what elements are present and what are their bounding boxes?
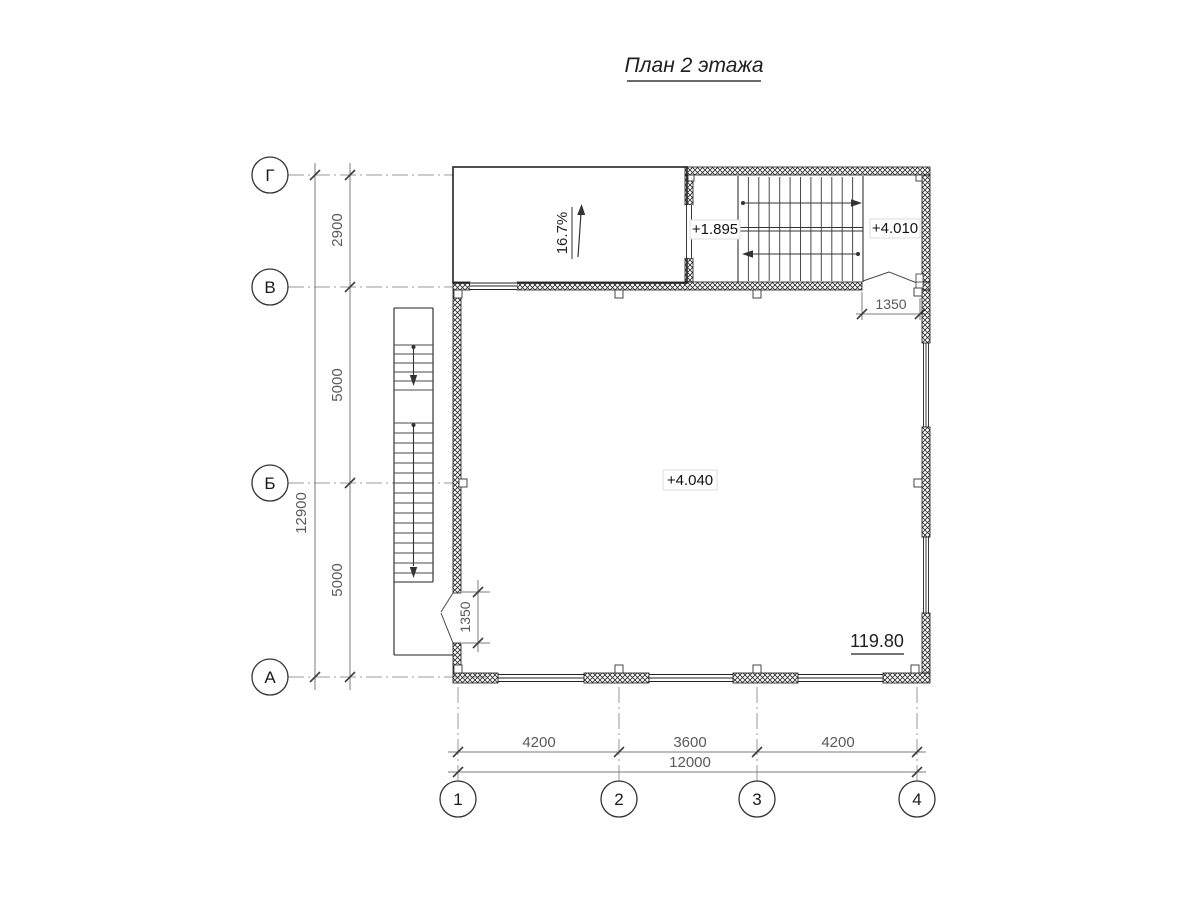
level-stair-mid-landing: +1.895 [692,221,738,238]
axis-label-col-2: 2 [614,790,623,809]
stair-external-down-arrow-upper [410,345,417,386]
dimension-texts: 2900 5000 5000 12900 4200 3600 4200 1200… [293,213,907,771]
stair-external [394,308,453,655]
dim-right-door: 1350 [875,296,906,312]
stair-main-treads [748,177,852,281]
dim-bottom-total: 12000 [669,754,711,771]
dim-left-total: 12900 [293,492,310,534]
dim-bottom-seg-2: 3600 [673,734,706,751]
dim-left-seg-3: 5000 [329,563,346,596]
level-floor: +4.040 [667,472,713,489]
ramp-slope-label: 16.7% [554,212,571,255]
dim-bottom-seg-1: 4200 [522,734,555,751]
dim-left-door: 1350 [457,601,473,632]
dim-left-seg-2: 5000 [329,368,346,401]
floor-plan-canvas: Г В Б А 1 2 3 4 План 2 этажа 2900 5000 5… [0,0,1200,900]
stair-external-down-arrow-lower [410,423,417,578]
axis-label-row-3: Б [264,474,275,493]
door-right [863,272,923,290]
room-area-annotation: 119.80 [850,631,904,654]
axis-label-col-4: 4 [912,790,921,809]
axis-label-row-2: В [264,278,275,297]
dim-left-seg-1: 2900 [329,213,346,246]
door-left [441,593,453,643]
dim-bottom-seg-3: 4200 [821,734,854,751]
axis-label-row-4: А [264,668,276,687]
level-marks: +1.895 +4.010 +4.040 [663,219,920,490]
axis-label-row-1: Г [265,166,274,185]
stair-main [738,176,863,282]
room-area-label: 119.80 [850,631,904,651]
level-stair-top: +4.010 [872,220,918,237]
axis-label-col-1: 1 [453,790,462,809]
title-block: План 2 этажа [624,54,763,81]
axis-label-col-3: 3 [752,790,761,809]
floor-plan-drawing: Г В Б А 1 2 3 4 План 2 этажа 2900 5000 5… [0,0,1200,900]
page-title: План 2 этажа [624,54,763,77]
